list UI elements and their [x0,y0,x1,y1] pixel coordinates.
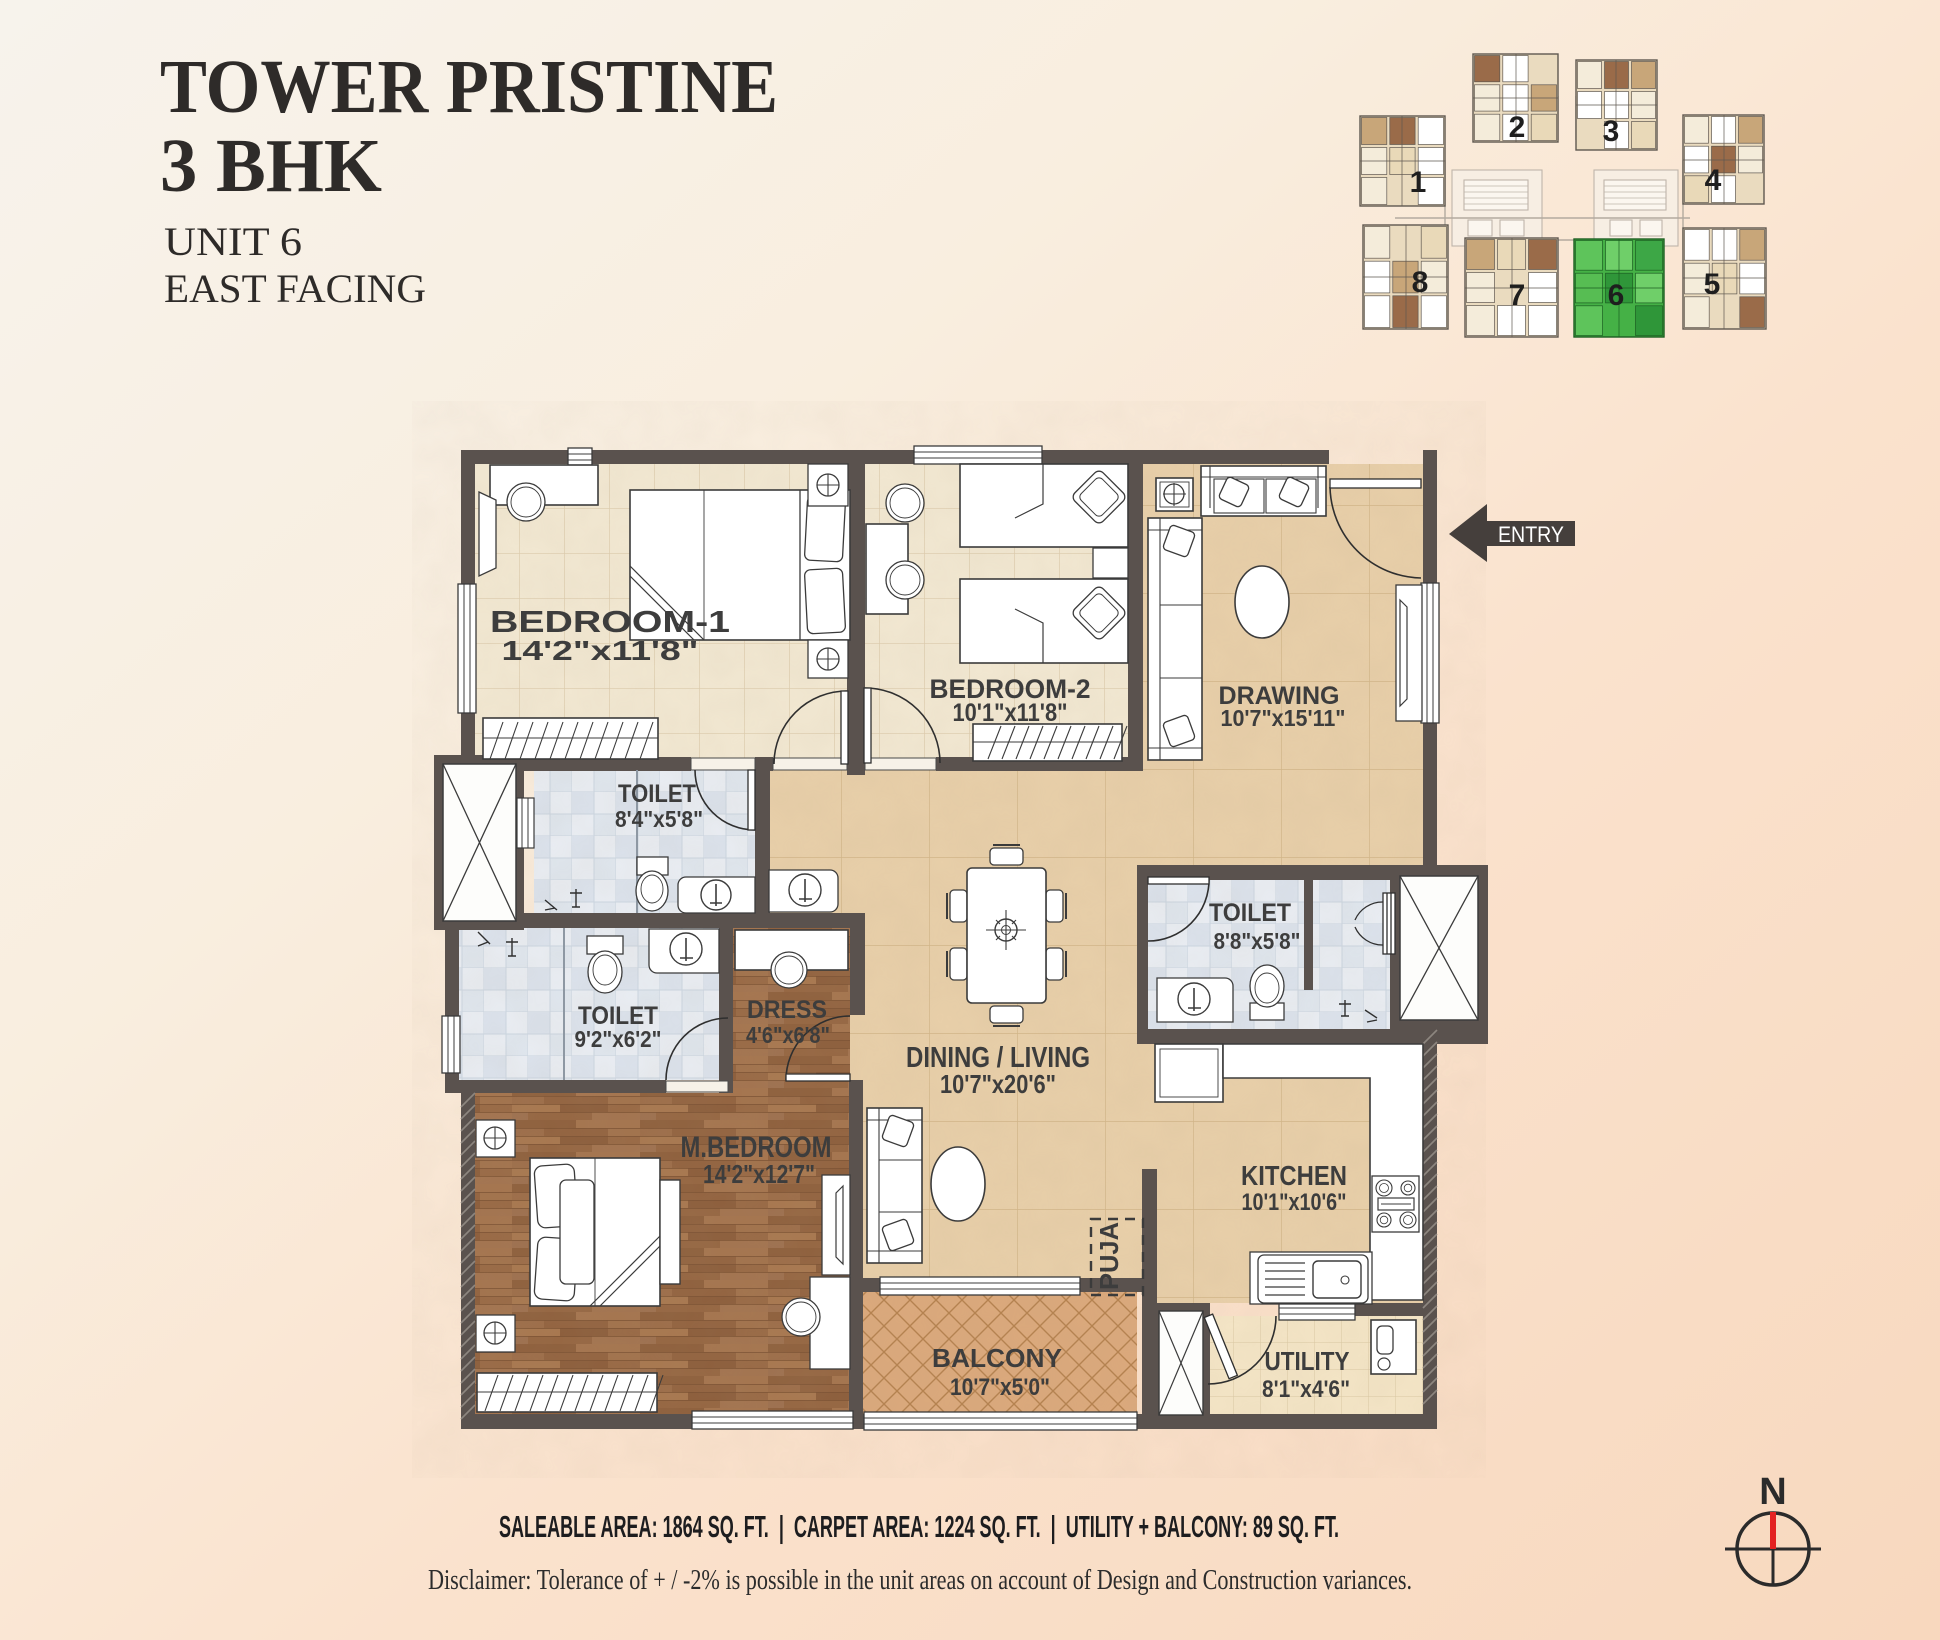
svg-text:10'7"x20'6": 10'7"x20'6" [940,1069,1056,1099]
svg-text:1: 1 [1410,166,1427,199]
svg-text:EAST FACING: EAST FACING [164,266,426,311]
svg-text:PUJA: PUJA [1094,1222,1124,1290]
svg-text:9'2"x6'2": 9'2"x6'2" [575,1026,662,1052]
svg-text:KITCHEN: KITCHEN [1241,1160,1347,1191]
svg-text:8'8"x5'8": 8'8"x5'8" [1214,928,1301,954]
svg-text:10'7"x5'0": 10'7"x5'0" [950,1374,1050,1401]
svg-text:8'4"x5'8": 8'4"x5'8" [615,806,703,832]
svg-text:6: 6 [1608,279,1625,312]
svg-text:N: N [1759,1471,1786,1513]
svg-text:4: 4 [1705,164,1722,197]
svg-text:BEDROOM-1: BEDROOM-1 [490,604,730,639]
svg-text:BALCONY: BALCONY [932,1343,1062,1373]
svg-text:UNIT 6: UNIT 6 [164,219,302,264]
svg-text:14'2"x12'7": 14'2"x12'7" [703,1159,815,1189]
svg-text:TOWER PRISTINE: TOWER PRISTINE [160,45,778,129]
svg-text:DRESS: DRESS [747,996,827,1024]
svg-text:14'2"x11'8": 14'2"x11'8" [502,635,699,666]
svg-text:SALEABLE AREA: 1864 SQ. FT. |: SALEABLE AREA: 1864 SQ. FT. | CARPET ARE… [499,1509,1339,1544]
svg-text:TOILET: TOILET [618,780,696,808]
svg-text:10'7"x15'11": 10'7"x15'11" [1221,705,1346,731]
svg-text:ENTRY: ENTRY [1498,522,1564,547]
svg-text:8: 8 [1412,266,1429,299]
svg-text:TOILET: TOILET [1209,899,1291,927]
svg-text:8'1"x4'6": 8'1"x4'6" [1262,1376,1350,1403]
svg-text:Disclaimer: Tolerance of + / -: Disclaimer: Tolerance of + / -2% is poss… [428,1564,1412,1596]
svg-text:5: 5 [1704,268,1721,301]
svg-text:4'6"x6'8": 4'6"x6'8" [746,1022,830,1048]
svg-text:UTILITY: UTILITY [1265,1346,1350,1376]
svg-text:3 BHK: 3 BHK [160,124,382,208]
svg-text:10'1"x10'6": 10'1"x10'6" [1242,1189,1347,1216]
svg-text:2: 2 [1509,111,1526,144]
svg-text:7: 7 [1509,279,1526,312]
svg-text:10'1"x11'8": 10'1"x11'8" [953,699,1068,727]
svg-text:3: 3 [1603,115,1620,148]
